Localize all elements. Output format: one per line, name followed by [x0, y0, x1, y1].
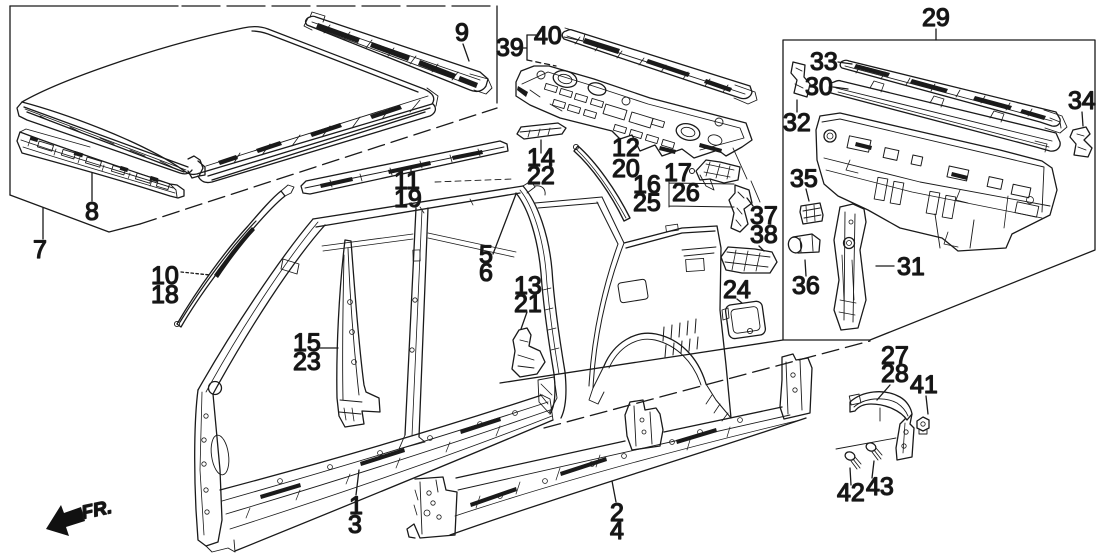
svg-text:33: 33 [810, 48, 838, 76]
svg-text:25: 25 [633, 189, 661, 217]
svg-text:18: 18 [151, 281, 179, 309]
svg-text:29: 29 [922, 4, 950, 32]
svg-text:3: 3 [348, 511, 362, 539]
svg-text:31: 31 [897, 253, 925, 281]
svg-text:40: 40 [534, 22, 562, 50]
svg-text:38: 38 [750, 221, 778, 249]
svg-text:FR.: FR. [80, 497, 114, 524]
svg-text:7: 7 [33, 236, 47, 264]
svg-text:6: 6 [479, 259, 493, 287]
svg-text:24: 24 [723, 276, 751, 304]
svg-text:9: 9 [455, 19, 469, 47]
svg-text:32: 32 [783, 109, 811, 137]
svg-text:4: 4 [610, 517, 624, 545]
svg-text:22: 22 [527, 162, 555, 190]
svg-text:28: 28 [881, 360, 909, 388]
svg-text:23: 23 [293, 348, 321, 376]
svg-text:19: 19 [394, 185, 422, 213]
svg-text:34: 34 [1068, 87, 1096, 115]
svg-text:35: 35 [790, 165, 818, 193]
svg-text:41: 41 [910, 371, 938, 399]
svg-text:21: 21 [514, 290, 542, 318]
svg-text:8: 8 [85, 198, 99, 226]
svg-text:43: 43 [866, 473, 894, 501]
